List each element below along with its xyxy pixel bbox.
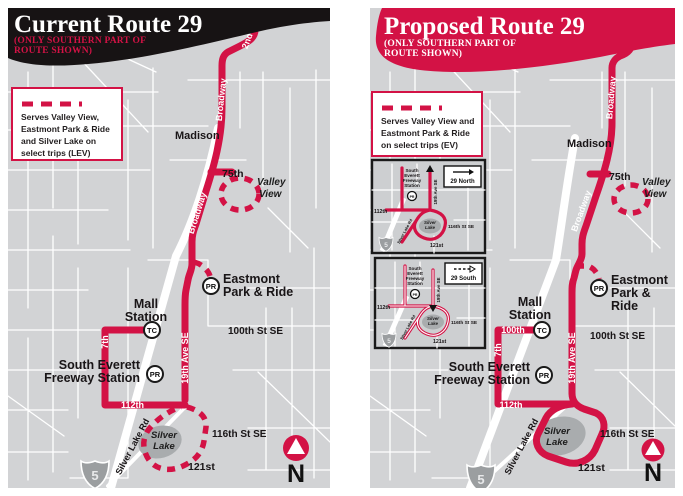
- street-label-100th: 100th: [501, 325, 525, 335]
- station-label-mall-1: Mall: [518, 295, 542, 309]
- place-label-silver-lake-1: Silver: [544, 426, 571, 437]
- inset-label-116th: 116th St SE: [448, 224, 475, 230]
- inset-map-29-north: PR South Everett Freeway Station 112th 1…: [372, 160, 485, 253]
- inset-label-19th-ave: 19th Ave SE: [433, 179, 438, 204]
- interstate-5-number: 5: [387, 338, 391, 345]
- station-label-south-everett-1: South Everett: [449, 360, 531, 374]
- place-label-valley-view-1: Valley: [642, 177, 671, 188]
- street-label-116th-st-se: 116th St SE: [600, 429, 655, 440]
- street-label-100th-st-se: 100th St SE: [590, 331, 645, 342]
- proposed-route-map: PR TC PR 52nd 2nd Broadway Broadway Madi…: [370, 8, 675, 493]
- street-label-madison: Madison: [567, 138, 612, 150]
- interstate-5-number: 5: [477, 472, 484, 487]
- inset-label-121st: 121st: [430, 243, 444, 249]
- map-subtitle-1: (ONLY SOUTHERN PART OF: [384, 38, 516, 49]
- tc-icon: TC: [147, 326, 158, 335]
- station-label-mall-1: Mall: [134, 297, 158, 311]
- inset-station-label-4: Station: [407, 281, 423, 286]
- inset-label-121st: 121st: [433, 339, 447, 345]
- map-title: Proposed Route 29: [384, 13, 585, 40]
- inset-label-112th: 112th: [374, 209, 387, 215]
- legend-line-1: Serves Valley View,: [21, 112, 99, 122]
- street-label-112th: 112th: [499, 400, 522, 410]
- map-subtitle-2: ROUTE SHOWN): [14, 45, 92, 56]
- street-label-madison: Madison: [175, 130, 220, 142]
- freeway-station-pr-badge: PR: [536, 367, 552, 383]
- pr-icon: PR: [413, 293, 418, 297]
- place-label-silver-lake-2: Lake: [546, 437, 568, 448]
- pr-icon: PR: [150, 370, 161, 379]
- station-label-mall-2: Station: [125, 310, 167, 324]
- mall-tc-badge: TC: [534, 322, 550, 338]
- current-route-map: PR TC PR 2nd Broadway Broadway Madison 7…: [8, 8, 330, 493]
- station-label-south-everett-2: Freeway Station: [44, 371, 140, 385]
- inset-label-19th-ave: 19th Ave SE: [436, 277, 441, 302]
- inset-station-label-4: Station: [404, 183, 420, 188]
- pr-icon: PR: [410, 195, 415, 199]
- legend-line-4: select trips (LEV): [21, 148, 91, 158]
- map-title: Current Route 29: [14, 11, 202, 38]
- inset-badge-29-north: 29 North: [444, 166, 481, 187]
- tc-icon: TC: [537, 326, 548, 335]
- legend-line-3: on select trips (EV): [381, 140, 458, 150]
- station-label-south-everett-2: Freeway Station: [434, 373, 530, 387]
- street-label-7th: 7th: [493, 343, 503, 357]
- map-subtitle-1: (ONLY SOUTHERN PART OF: [14, 35, 146, 46]
- place-label-silver-lake-1: Silver: [151, 430, 178, 441]
- pr-icon: PR: [539, 371, 550, 380]
- station-label-eastmont-3: Ride: [611, 299, 638, 313]
- legend-line-3: and Silver Lake on: [21, 136, 96, 146]
- north-letter: N: [287, 460, 305, 488]
- street-label-19th-ave-se: 19th Ave SE: [180, 332, 190, 383]
- inset-badge-29-south: 29 South: [445, 263, 482, 284]
- street-label-121st: 121st: [188, 461, 215, 473]
- current-map-canvas: PR TC PR 2nd Broadway Broadway Madison 7…: [8, 8, 330, 488]
- street-label-112th: 112th: [121, 400, 144, 410]
- street-label-75th: 75th: [609, 171, 631, 183]
- map-subtitle-2: ROUTE SHOWN): [384, 48, 462, 59]
- inset-label-116th: 116th St SE: [451, 320, 478, 326]
- inset-label-lake: Lake: [425, 225, 436, 230]
- interstate-5-number: 5: [384, 242, 388, 249]
- legend-line-1: Serves Valley View and: [381, 116, 474, 126]
- inset-badge-label: 29 North: [450, 179, 475, 185]
- north-letter: N: [644, 459, 662, 487]
- station-label-eastmont-2: Park &: [611, 286, 651, 300]
- legend-box: Serves Valley View, Eastmont Park & Ride…: [12, 88, 122, 160]
- pr-icon: PR: [594, 284, 605, 293]
- station-label-mall-2: Station: [509, 308, 551, 322]
- station-label-south-everett-1: South Everett: [59, 358, 141, 372]
- inset-badge-label: 29 South: [451, 276, 477, 282]
- inset-label-112th: 112th: [377, 305, 390, 311]
- street-label-116th-st-se: 116th St SE: [212, 429, 267, 440]
- legend-line-2: Eastmont Park & Ride: [381, 128, 470, 138]
- inset-map-29-south: PR South Everett Freeway Station 112th 1…: [375, 258, 485, 348]
- interstate-5-shield: 5: [467, 465, 495, 488]
- proposed-map-canvas: PR TC PR 52nd 2nd Broadway Broadway Madi…: [370, 8, 675, 488]
- place-label-valley-view-2: View: [259, 189, 283, 200]
- station-label-eastmont-1: Eastmont: [223, 272, 281, 286]
- eastmont-pr-badge: PR: [591, 280, 607, 296]
- eastmont-pr-badge: PR: [203, 278, 219, 294]
- street-label-19th-ave-se: 19th Ave SE: [567, 332, 577, 383]
- place-label-valley-view-2: View: [644, 189, 668, 200]
- mall-tc-badge: TC: [144, 322, 160, 338]
- station-label-eastmont-1: Eastmont: [611, 273, 669, 287]
- pr-icon: PR: [206, 282, 217, 291]
- north-arrow: N: [642, 439, 665, 488]
- street-label-121st: 121st: [578, 462, 605, 474]
- inset-label-lake: Lake: [428, 321, 439, 326]
- place-label-silver-lake-2: Lake: [153, 441, 175, 452]
- legend-box: Serves Valley View and Eastmont Park & R…: [372, 92, 482, 156]
- legend-line-2: Eastmont Park & Ride: [21, 124, 110, 134]
- place-label-valley-view-1: Valley: [257, 177, 286, 188]
- street-label-7th: 7th: [100, 335, 110, 349]
- station-label-eastmont-2: Park & Ride: [223, 285, 293, 299]
- street-label-100th-st-se: 100th St SE: [228, 326, 283, 337]
- interstate-5-number: 5: [91, 468, 98, 483]
- freeway-station-pr-badge: PR: [147, 366, 163, 382]
- street-label-75th: 75th: [222, 168, 244, 180]
